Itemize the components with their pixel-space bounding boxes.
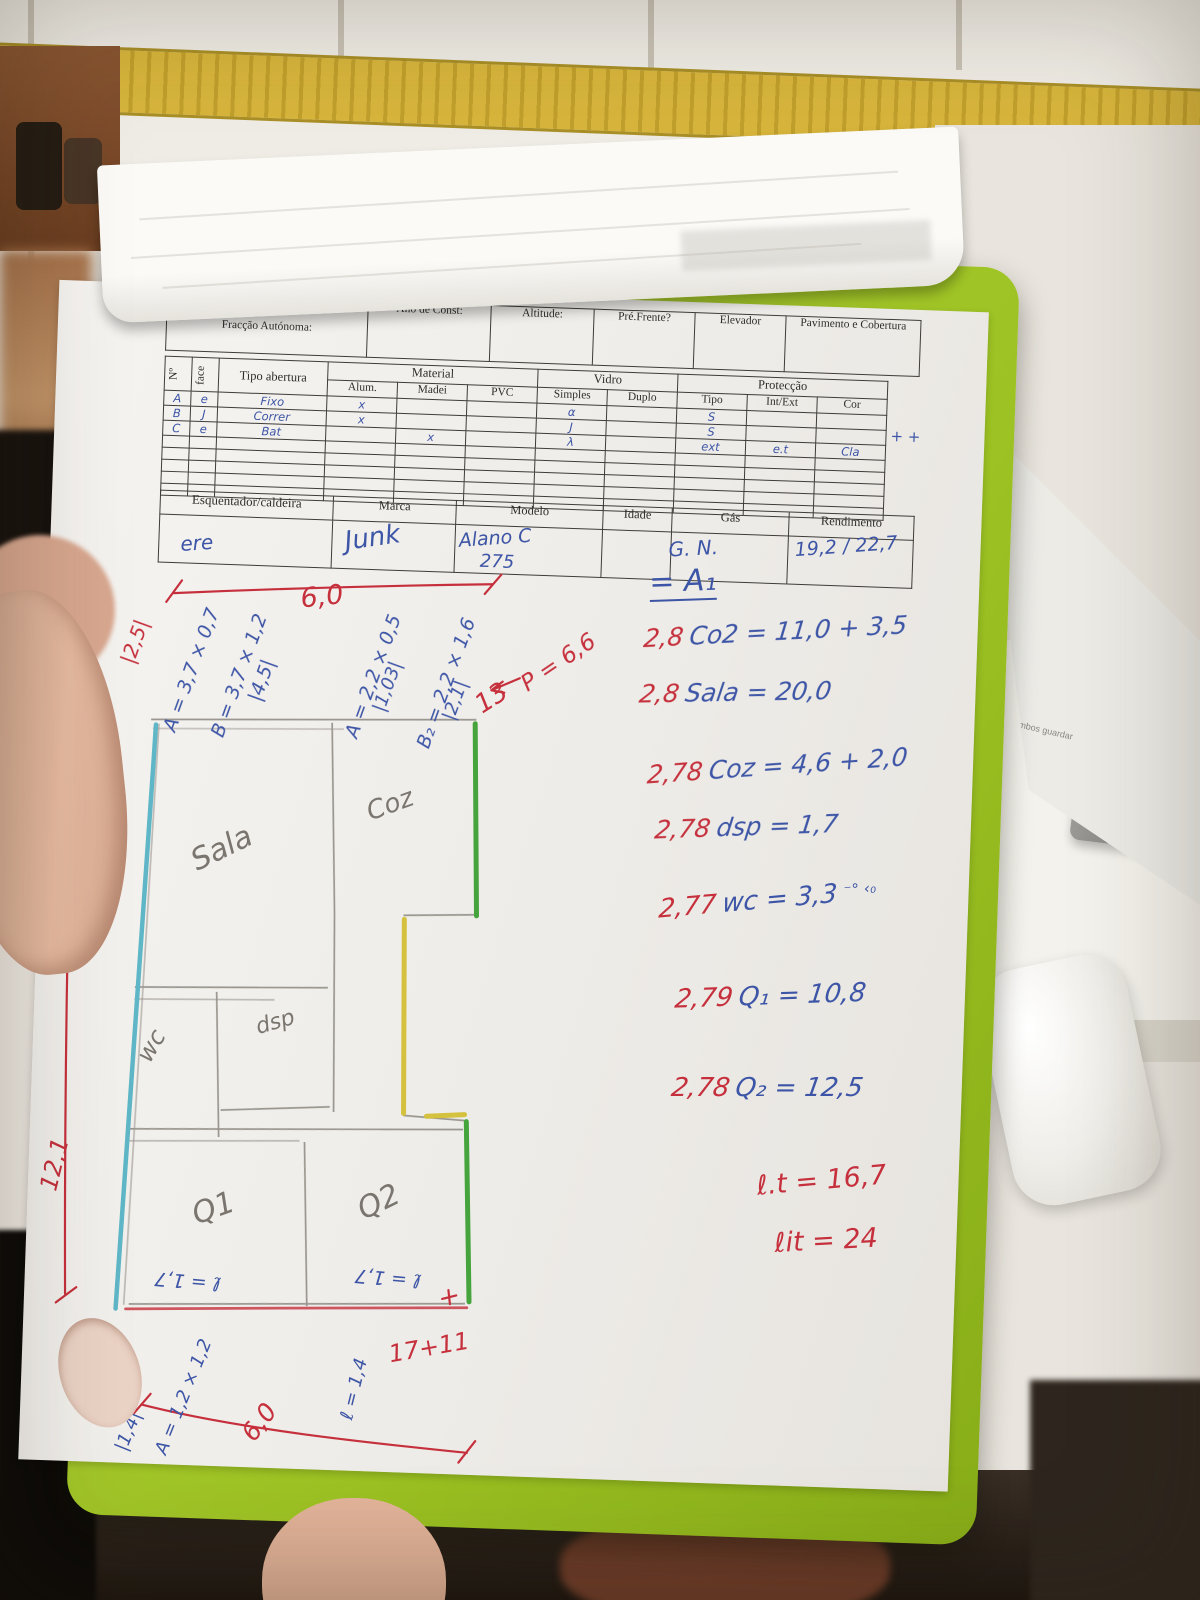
calc-expr: Q₂ = 12,5 bbox=[734, 1073, 866, 1103]
calc-coef: 2,78 bbox=[669, 1073, 732, 1103]
calc-coef: 2,8 bbox=[642, 622, 685, 653]
survey-sheet: Fracção Autónoma: Ano de Const: Altitude… bbox=[18, 280, 989, 1492]
calc-marks: ⁻° ‹₀ bbox=[843, 879, 877, 900]
dim-top: 6,0 bbox=[299, 579, 345, 614]
calc-coef: 2,78 bbox=[653, 813, 712, 844]
calc-heading: = A₁ bbox=[649, 563, 717, 602]
tile-grout bbox=[648, 0, 654, 70]
calc-coef: 2,8 bbox=[637, 679, 681, 709]
calc-expr: Sala = 20,0 bbox=[683, 676, 833, 708]
calc-coef: 2,78 bbox=[646, 756, 704, 789]
calc-expr: dsp = 1,7 bbox=[715, 809, 840, 842]
calc-line: 2,8 Sala = 20,0 bbox=[639, 676, 831, 709]
showthrough-stamp bbox=[680, 220, 932, 271]
floor-shadow bbox=[1030, 1380, 1200, 1600]
calc-coef: 2,79 bbox=[673, 982, 735, 1014]
showthrough-line bbox=[139, 171, 898, 221]
calc-line: 2,78 Q₂ = 12,5 bbox=[672, 1073, 863, 1103]
calc-line: 2,78 dsp = 1,7 bbox=[654, 809, 838, 845]
photo-scene: ambos guardar MobileDedPropCert v.5 Frac… bbox=[0, 0, 1200, 1600]
calc-coef: 2,77 bbox=[658, 889, 718, 924]
calc-total: ℓit = 24 bbox=[774, 1223, 879, 1259]
calc-expr: Q₁ = 10,8 bbox=[737, 978, 868, 1013]
jar bbox=[16, 122, 62, 210]
tile-grout bbox=[956, 0, 962, 70]
